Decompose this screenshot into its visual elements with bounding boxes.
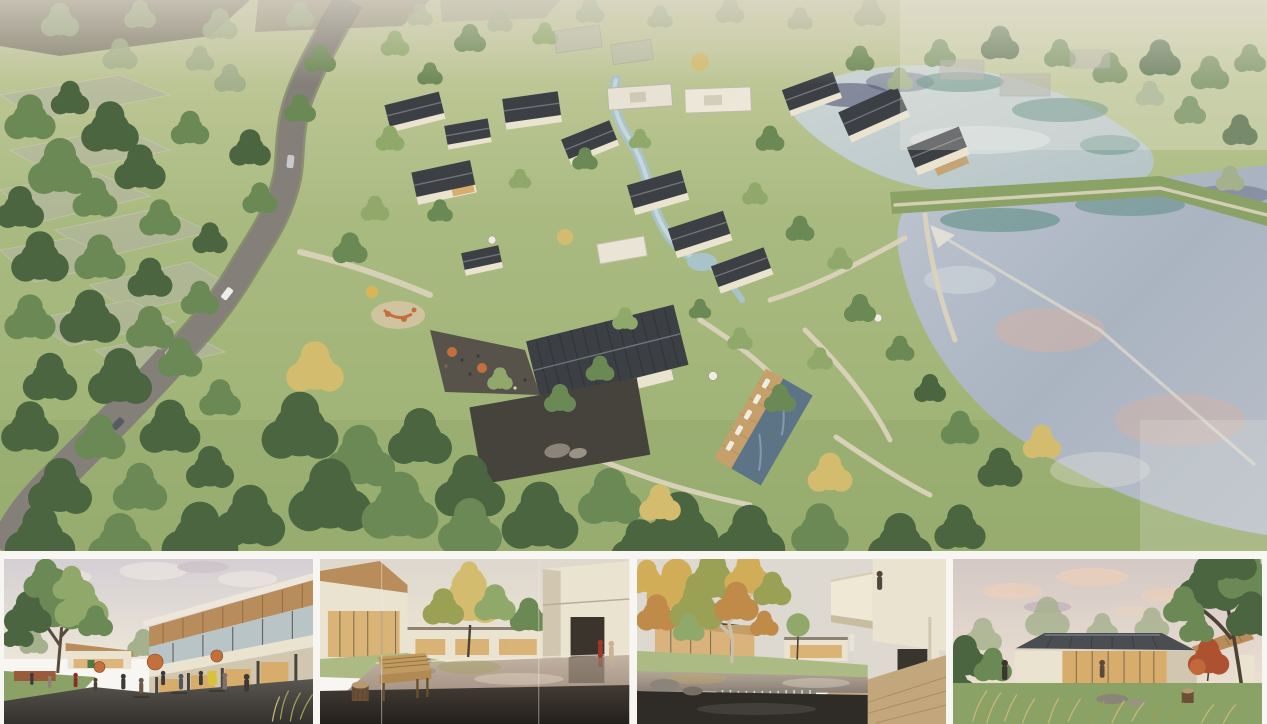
thumbnail-plaza-render	[4, 559, 313, 724]
thumbnail-garden-pavilion-render	[953, 559, 1262, 724]
thumbnail-waterfall-court-render	[637, 559, 946, 724]
tree-stump	[1181, 689, 1193, 704]
render-thumbnails	[0, 551, 1267, 724]
aerial-masterplan-render	[0, 0, 1267, 551]
visitor-figure	[1001, 660, 1007, 680]
presentation-board	[0, 0, 1267, 724]
shop-sign	[207, 671, 217, 686]
interior-figure	[1099, 660, 1105, 678]
log-stool	[352, 682, 369, 702]
left-house	[320, 561, 408, 667]
thumbnail-courtyard-pond-render	[320, 559, 629, 724]
standing-figure	[848, 634, 854, 652]
koi-pond	[637, 671, 868, 724]
